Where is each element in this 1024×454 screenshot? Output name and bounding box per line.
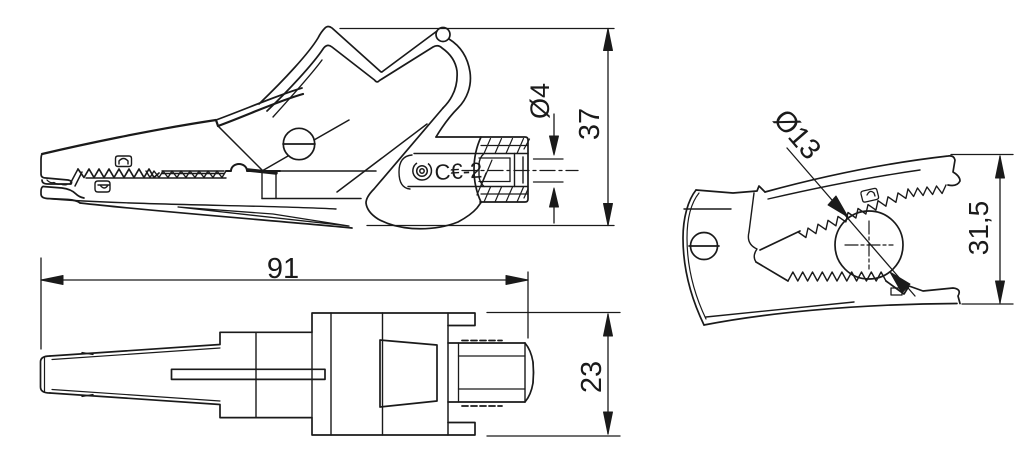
svg-text:23: 23 <box>576 361 608 393</box>
svg-text:Ø4: Ø4 <box>525 83 555 119</box>
svg-text:91: 91 <box>267 253 299 285</box>
svg-text:C€-2: C€-2 <box>434 158 483 185</box>
svg-text:31,5: 31,5 <box>963 201 994 256</box>
svg-text:37: 37 <box>574 108 606 140</box>
